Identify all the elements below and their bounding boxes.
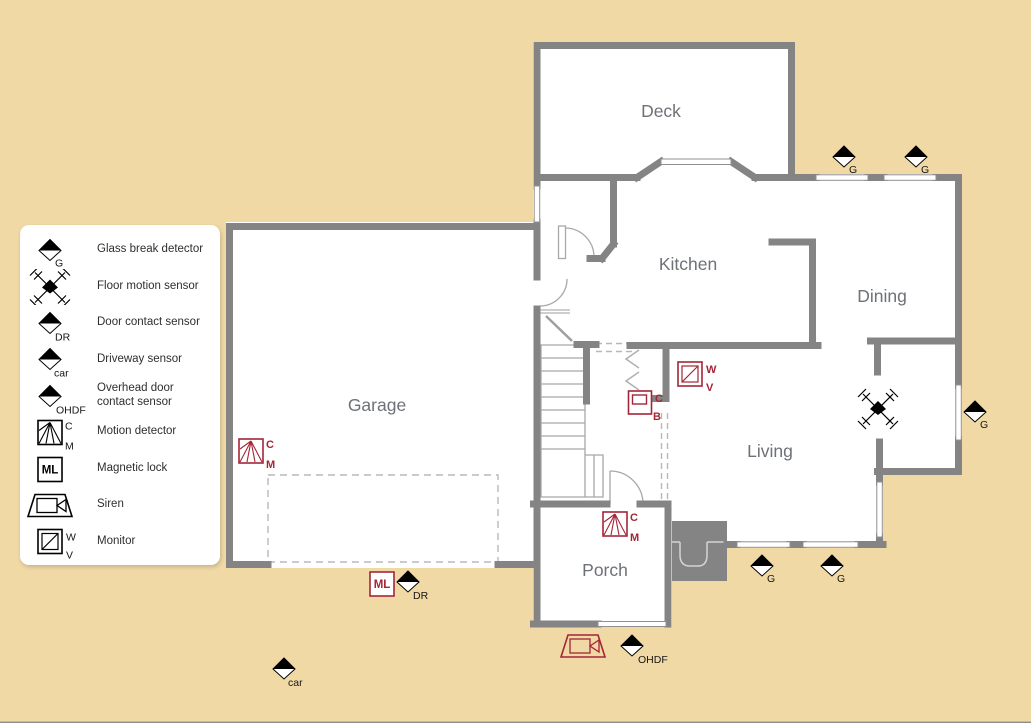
legend-item-driveway: carDriveway sensor <box>20 341 220 377</box>
room-floors <box>226 42 962 627</box>
legend-item-overhead-door: OHDFOverhead door contact sensor <box>20 378 220 414</box>
sensor-tag: OHDF <box>638 654 668 666</box>
legend-item-label: Floor motion sensor <box>97 280 213 294</box>
stoop-block <box>672 521 727 581</box>
sensor-tag: M <box>65 441 74 451</box>
room-label-porch: Porch <box>582 560 628 580</box>
sensor-tag: W <box>66 532 76 544</box>
legend-item-label: Overhead door contact sensor <box>97 382 213 409</box>
legend-item-label: Glass break detector <box>97 243 213 257</box>
front-door <box>598 622 666 627</box>
sensor-tag: G <box>55 258 63 269</box>
legend-item-motion-detector: CMMotion detector <box>20 414 220 450</box>
sensor-tag: DR <box>55 331 71 341</box>
overhead-door-icon: OHDF <box>20 378 97 414</box>
door-contact-icon[interactable]: DR <box>397 571 429 602</box>
room-label-deck: Deck <box>641 101 681 121</box>
legend-item-label: Magnetic lock <box>97 462 213 476</box>
magnetic-lock-icon: ML <box>20 451 97 487</box>
motion-detector-icon: CM <box>20 414 97 450</box>
sensor-tag: M <box>630 532 639 544</box>
sensor-tag: C <box>630 512 638 524</box>
sensor-tag: DR <box>413 590 429 602</box>
legend-item-label: Siren <box>97 498 213 512</box>
legend-item-label: Monitor <box>97 535 213 549</box>
floor-motion-icon <box>20 269 97 305</box>
sensor-tag: car <box>288 677 303 689</box>
door-contact-icon: DR <box>20 305 97 341</box>
siren-icon <box>20 487 97 523</box>
legend-item-floor-motion: Floor motion sensor <box>20 268 220 304</box>
sensor-tag: ML <box>42 464 59 476</box>
sensor-tag: G <box>980 419 988 431</box>
driveway-icon[interactable]: car <box>273 658 303 689</box>
sensor-tag: V <box>706 382 714 394</box>
room-label-living: Living <box>747 441 793 461</box>
sensor-tag: C <box>266 439 274 451</box>
glass-break-icon[interactable]: G <box>964 401 988 431</box>
monitor-icon: WV <box>20 523 97 559</box>
door-leaf <box>559 226 566 259</box>
sensor-tag: G <box>767 573 775 585</box>
room-label-dining: Dining <box>857 286 907 306</box>
sensor-tag: C <box>65 421 73 433</box>
glass-break-icon[interactable]: G <box>833 146 857 176</box>
legend-item-label: Motion detector <box>97 425 213 439</box>
legend-item-siren: Siren <box>20 487 220 523</box>
legend-item-door-contact: DRDoor contact sensor <box>20 305 220 341</box>
siren-icon[interactable] <box>561 635 605 657</box>
sensor-tag: C <box>655 393 663 405</box>
sensor-tag: G <box>849 164 857 176</box>
sensor-tag: M <box>266 459 275 471</box>
legend-panel: GGlass break detectorFloor motion sensor… <box>20 225 220 565</box>
sensor-tag: ML <box>374 579 391 591</box>
sensor-tag: V <box>66 550 73 560</box>
driveway-icon: car <box>20 341 97 377</box>
legend-item-label: Driveway sensor <box>97 353 213 367</box>
security-floor-plan: { "colors": { "background": "#f1d9a6", "… <box>0 0 1031 723</box>
overhead-door-icon[interactable]: OHDF <box>621 635 668 666</box>
sensor-tag: B <box>653 411 661 423</box>
sensor-tag: G <box>921 164 929 176</box>
legend-item-magnetic-lock: MLMagnetic lock <box>20 450 220 486</box>
sensor-tag: car <box>54 368 69 378</box>
glass-break-icon[interactable]: G <box>821 555 845 585</box>
room-label-kitchen: Kitchen <box>659 254 717 274</box>
glass-break-icon[interactable]: G <box>751 555 775 585</box>
sensor-tag: W <box>706 364 717 376</box>
magnetic-lock-icon[interactable]: ML <box>370 572 394 596</box>
sensor-tag: G <box>837 573 845 585</box>
legend-item-monitor: WVMonitor <box>20 523 220 559</box>
glass-break-icon: G <box>20 232 97 268</box>
legend-item-label: Door contact sensor <box>97 316 213 330</box>
sensor-tag: OHDF <box>56 404 86 414</box>
room-label-garage: Garage <box>348 395 406 415</box>
legend-item-glass-break: GGlass break detector <box>20 232 220 268</box>
glass-break-icon[interactable]: G <box>905 146 929 176</box>
